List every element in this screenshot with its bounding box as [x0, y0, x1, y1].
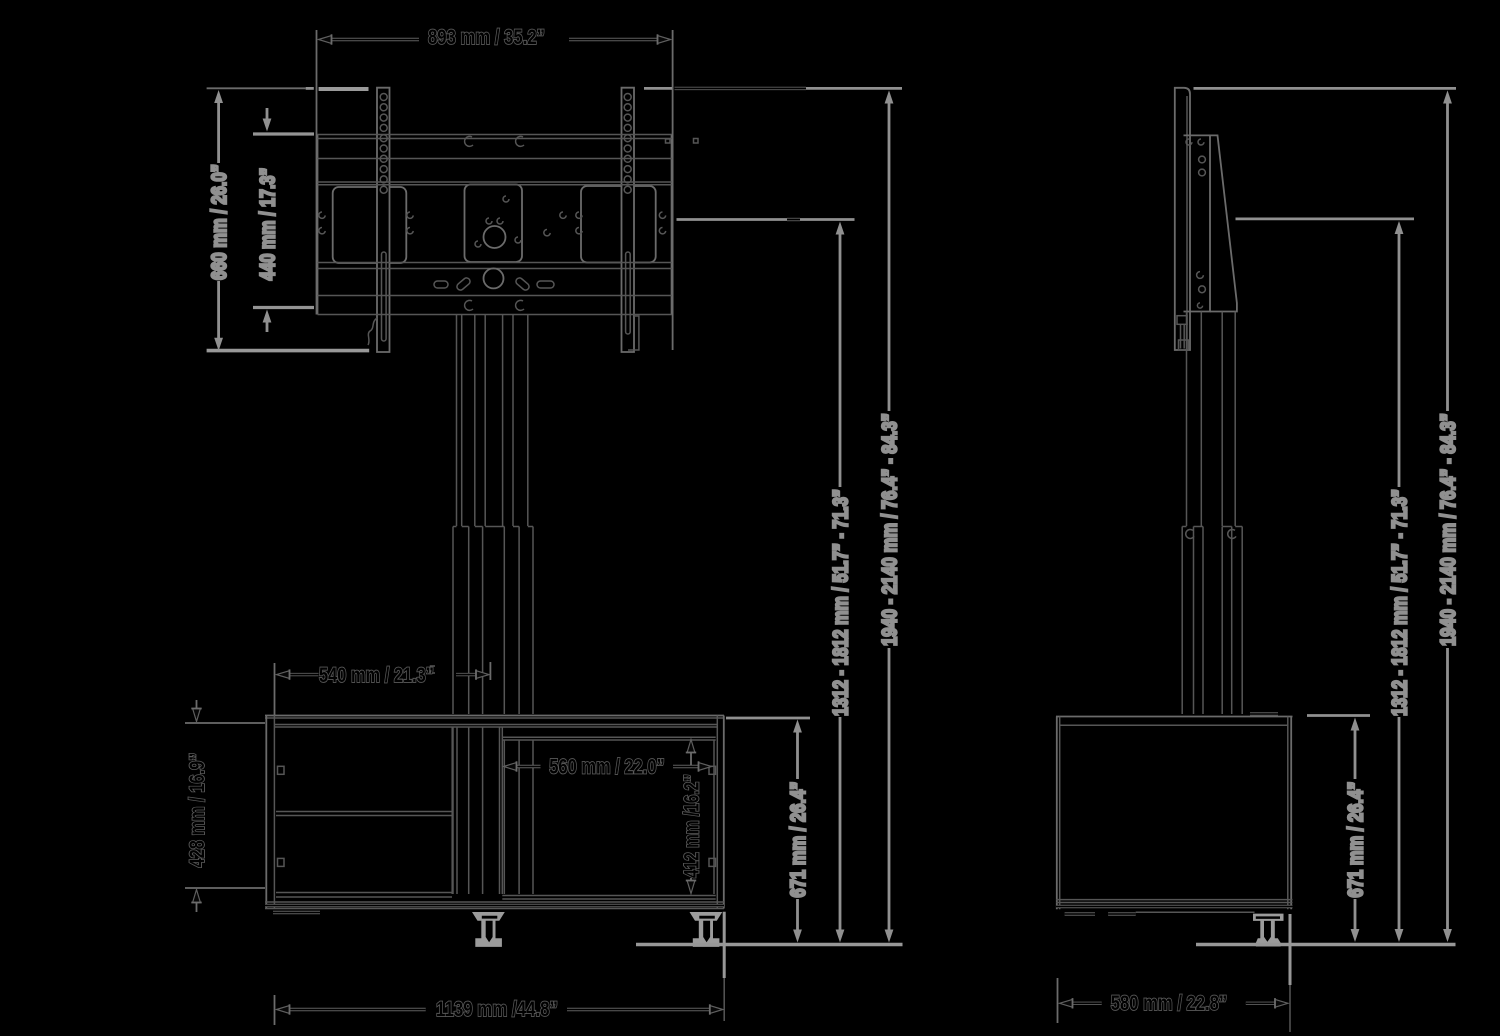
svg-text:412 mm /16.2”: 412 mm /16.2”	[681, 774, 704, 878]
svg-text:540 mm / 21.3”: 540 mm / 21.3”	[319, 664, 434, 687]
svg-text:428 mm / 16.9”: 428 mm / 16.9”	[186, 753, 209, 868]
svg-text:440 mm / 17.3”: 440 mm / 17.3”	[257, 168, 280, 281]
svg-text:560 mm / 22.0”: 560 mm / 22.0”	[549, 756, 665, 779]
svg-text:671 mm / 26.4”: 671 mm / 26.4”	[787, 782, 810, 898]
svg-text:671 mm / 26.4”: 671 mm / 26.4”	[1345, 782, 1368, 898]
svg-text:580 mm / 22.8”: 580 mm / 22.8”	[1111, 992, 1228, 1015]
svg-text:893 mm / 35.2”: 893 mm / 35.2”	[428, 26, 545, 49]
svg-text:1139 mm /44.8”: 1139 mm /44.8”	[436, 998, 558, 1021]
svg-text:660 mm / 26.0”: 660 mm / 26.0”	[208, 164, 231, 280]
svg-text:1312 - 1812 mm / 51.7” - 71.3”: 1312 - 1812 mm / 51.7” - 71.3”	[1389, 489, 1412, 716]
svg-text:1312 - 1812 mm / 51.7” - 71.3”: 1312 - 1812 mm / 51.7” - 71.3”	[830, 489, 853, 716]
svg-text:1940 - 2140 mm / 76.4” - 84.3”: 1940 - 2140 mm / 76.4” - 84.3”	[1437, 413, 1460, 646]
svg-text:1940 - 2140 mm / 76.4” - 84.3”: 1940 - 2140 mm / 76.4” - 84.3”	[879, 413, 902, 646]
